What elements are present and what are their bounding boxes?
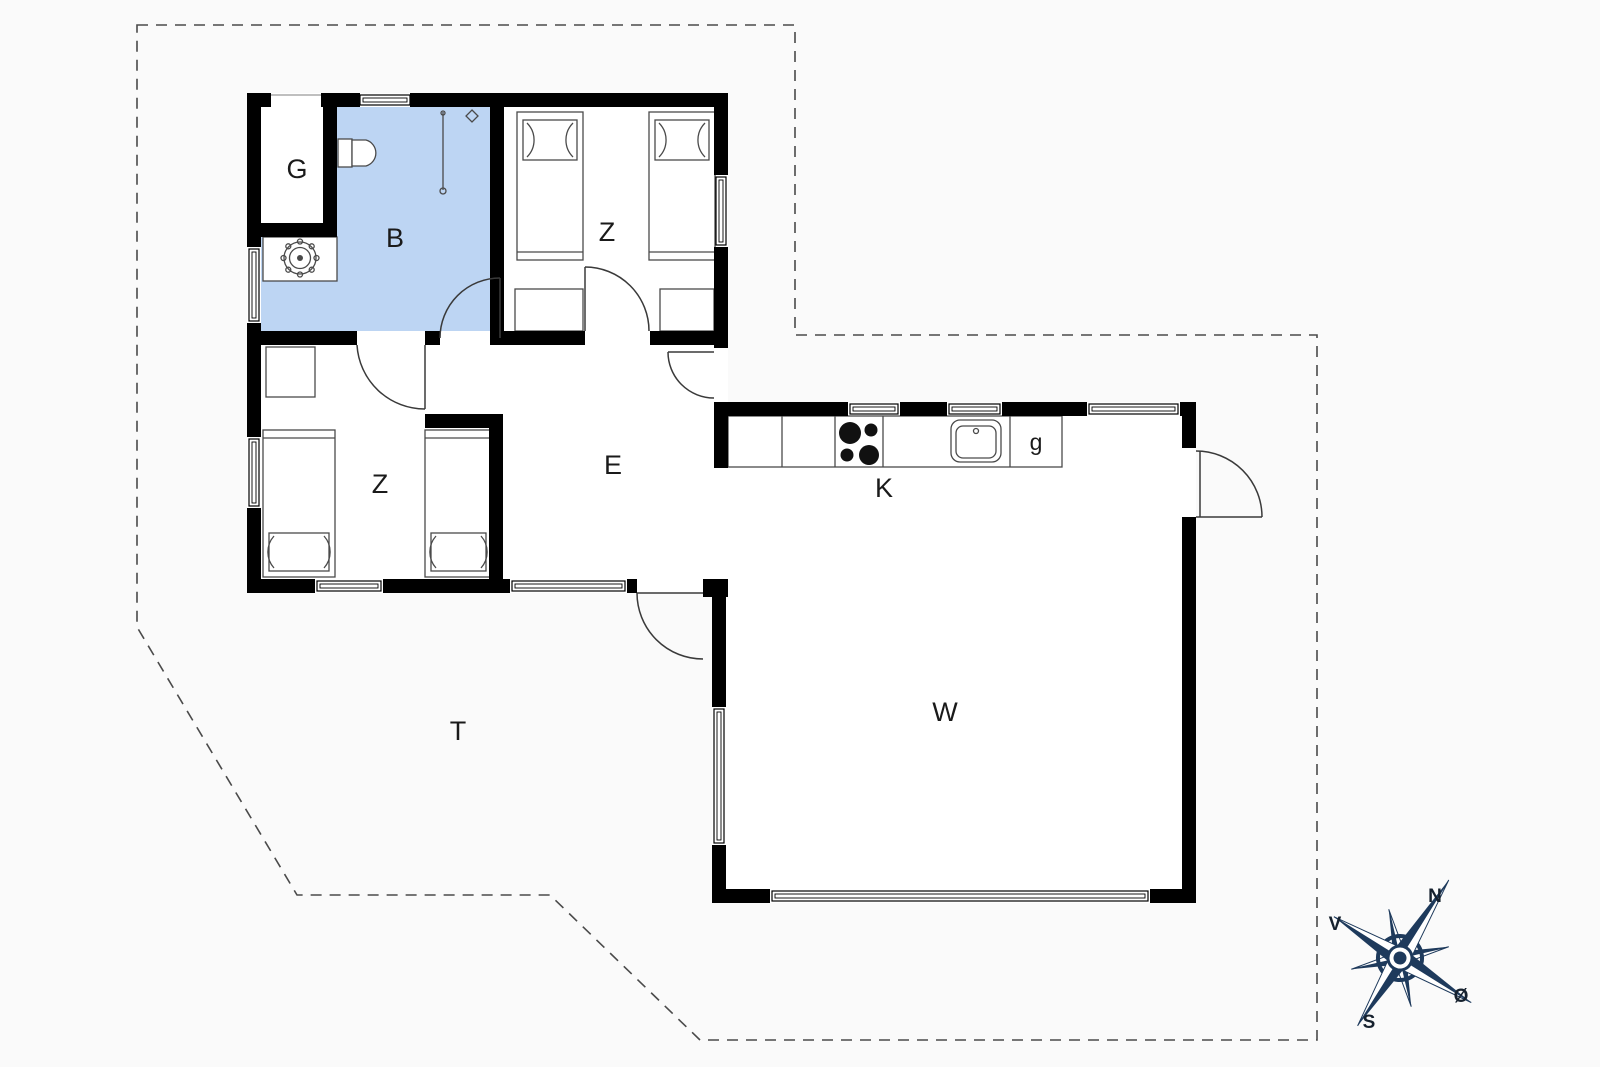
room-label-bathroom: B <box>386 223 404 253</box>
room-label-bedroom-lower: Z <box>372 469 389 499</box>
bed-icon <box>649 112 715 260</box>
window <box>249 249 259 321</box>
window <box>714 709 724 843</box>
floor-plan-canvas: G B Z Z E K g W T N <box>0 0 1600 1067</box>
toilet-icon <box>338 139 376 167</box>
bed-icon <box>517 112 583 260</box>
room-label-garderobe: G <box>286 154 307 184</box>
window <box>772 891 1148 901</box>
compass-label-west: V <box>1329 914 1342 935</box>
compass-label-south: S <box>1363 1012 1376 1033</box>
floor-right-wing <box>712 402 1196 903</box>
closet-box <box>266 347 315 397</box>
room-label-terrace: T <box>450 716 467 746</box>
wall-gap <box>271 94 321 106</box>
wardrobe-box <box>660 289 714 331</box>
bed-icon <box>425 430 492 577</box>
room-label-living-room: W <box>932 697 958 727</box>
wardrobe-box <box>515 289 583 331</box>
window <box>249 439 259 506</box>
room-label-kitchen: K <box>875 473 893 503</box>
washing-machine-icon <box>263 237 337 281</box>
window <box>949 404 1000 414</box>
room-label-hall: E <box>604 450 622 480</box>
kitchen-counter <box>728 416 1062 467</box>
room-label-bedroom-top: Z <box>599 217 616 247</box>
floor-plan-page: G B Z Z E K g W T N <box>0 0 1600 1067</box>
window <box>850 404 898 414</box>
window <box>716 177 726 245</box>
compass-label-north: N <box>1428 886 1442 907</box>
window <box>360 95 410 105</box>
compass-label-east: Ø <box>1454 986 1469 1007</box>
room-label-cupboard: g <box>1030 429 1043 455</box>
window <box>1089 404 1178 414</box>
window <box>317 581 381 591</box>
window <box>512 581 625 591</box>
bed-icon <box>263 430 335 577</box>
sink-icon <box>951 420 1001 462</box>
